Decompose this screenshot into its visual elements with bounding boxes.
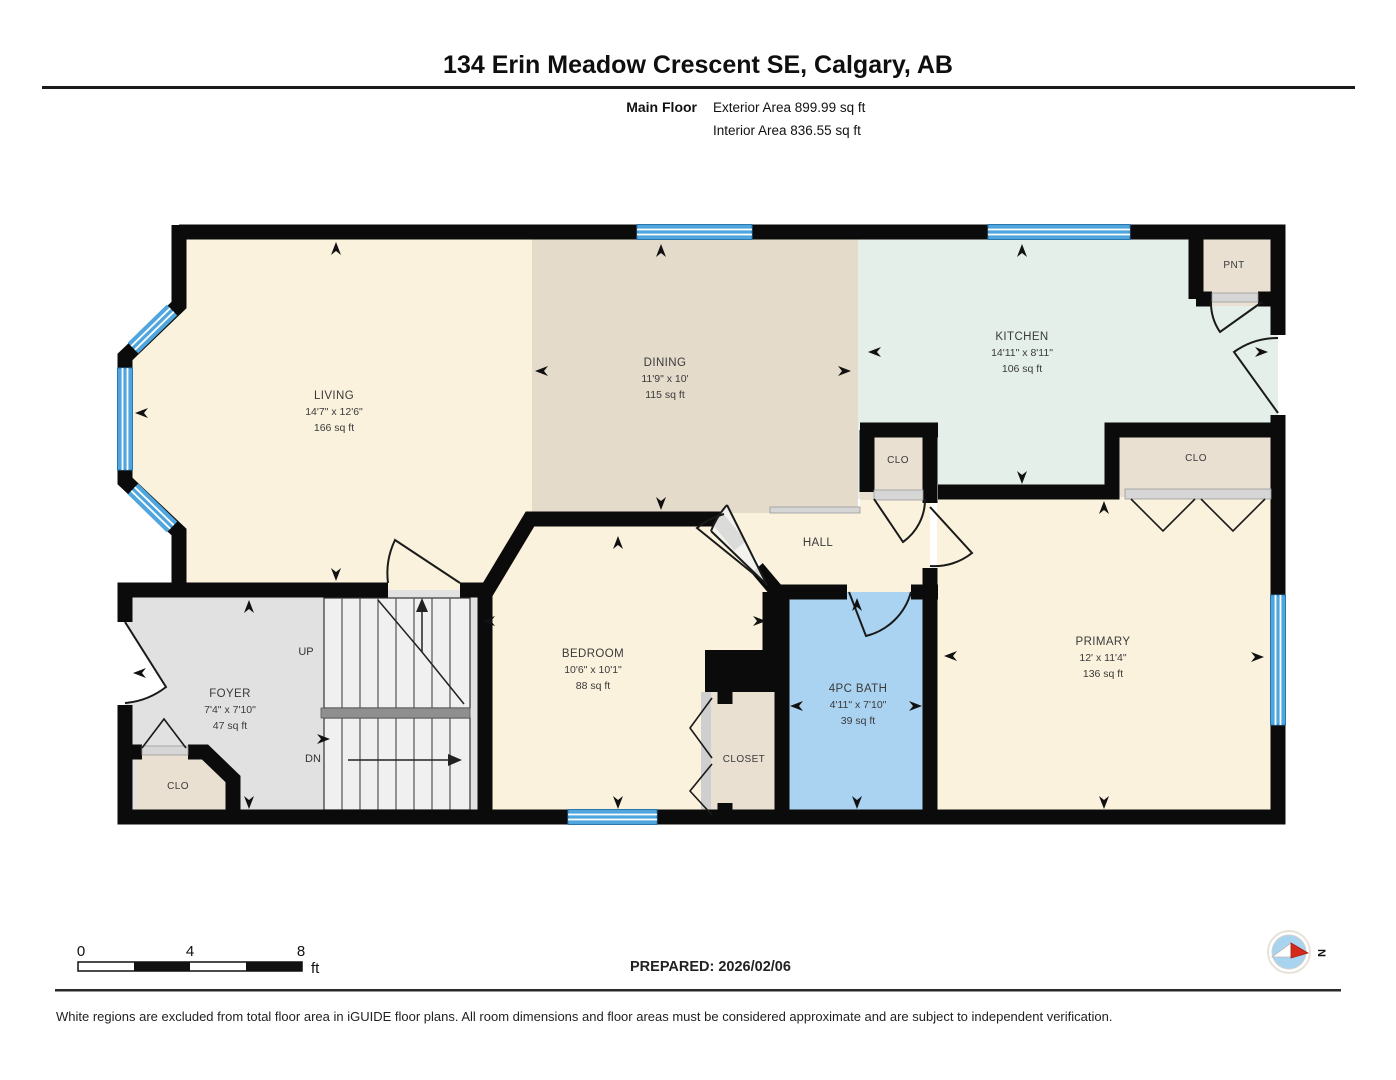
bedroom-dims: 10'6" x 10'1" xyxy=(564,664,622,676)
bath-name: 4PC BATH xyxy=(829,683,888,695)
closet-hall-name: CLO xyxy=(887,455,909,466)
stairs-up-flight xyxy=(324,598,470,708)
floorplan-page: 134 Erin Meadow Crescent SE, Calgary, AB… xyxy=(0,0,1396,1080)
stair-landing xyxy=(321,708,470,718)
closet-primary-threshold xyxy=(1125,489,1271,499)
floorplan-canvas: 134 Erin Meadow Crescent SE, Calgary, AB… xyxy=(0,0,1396,1080)
scale-bar-segment-1 xyxy=(134,962,190,971)
window-dining-top xyxy=(637,225,752,240)
dining-name: DINING xyxy=(644,357,687,369)
kitchen-name: KITCHEN xyxy=(995,331,1048,343)
scale-tick-8: 8 xyxy=(297,943,305,960)
primary-name: PRIMARY xyxy=(1076,636,1131,648)
compass-north-label: N xyxy=(1315,949,1327,957)
pantry-threshold xyxy=(1212,293,1258,302)
primary-dims: 12' x 11'4" xyxy=(1079,652,1127,664)
window-kitchen-top xyxy=(988,225,1130,240)
hall-threshold xyxy=(770,507,860,513)
floor-label: Main Floor xyxy=(626,99,697,115)
pantry-name: PNT xyxy=(1223,260,1244,271)
living-name: LIVING xyxy=(314,390,354,402)
exterior-area-label: Exterior Area 899.99 sq ft xyxy=(713,100,866,115)
dining-area: 115 sq ft xyxy=(645,389,685,401)
dining-floor xyxy=(532,232,858,519)
bedroom-name: BEDROOM xyxy=(562,648,624,660)
hall-name: HALL xyxy=(803,537,834,549)
wall-closet-bedroom-block xyxy=(705,650,782,692)
bedroom-area: 88 sq ft xyxy=(576,680,611,692)
scale-tick-0: 0 xyxy=(77,943,85,960)
stairs-up-label: UP xyxy=(298,646,313,658)
stairs-down-label: DN xyxy=(305,753,321,765)
scale-bar: 0 4 8 ft xyxy=(77,943,320,977)
living-area: 166 sq ft xyxy=(314,422,354,434)
closet-foyer-name: CLO xyxy=(167,781,189,792)
foyer-dims: 7'4" x 7'10" xyxy=(204,704,256,716)
compass-icon: N xyxy=(1268,931,1327,973)
foyer-name: FOYER xyxy=(209,688,251,700)
foyer-area: 47 sq ft xyxy=(213,720,248,732)
header-divider xyxy=(42,86,1355,89)
page-title: 134 Erin Meadow Crescent SE, Calgary, AB xyxy=(443,51,953,79)
window-bay-left xyxy=(118,368,133,470)
bath-dims: 4'11" x 7'10" xyxy=(830,699,887,711)
window-primary-right xyxy=(1271,595,1286,725)
dining-dims: 11'9" x 10' xyxy=(641,373,688,385)
closet-foyer-threshold xyxy=(142,746,188,755)
footer-divider xyxy=(55,989,1341,992)
footer: 0 4 8 ft PREPARED: 2026/02/06 N White re… xyxy=(55,931,1341,1024)
prepared-date: PREPARED: 2026/02/06 xyxy=(630,959,791,975)
scale-unit: ft xyxy=(311,960,320,977)
closet-primary-name: CLO xyxy=(1185,453,1207,464)
staircase xyxy=(321,598,470,810)
scale-tick-4: 4 xyxy=(186,943,194,960)
scale-bar-segment-2 xyxy=(246,962,302,971)
kitchen-area: 106 sq ft xyxy=(1002,363,1042,375)
disclaimer-text: White regions are excluded from total fl… xyxy=(56,1009,1112,1024)
primary-area: 136 sq ft xyxy=(1083,668,1123,680)
closet-hall-threshold xyxy=(874,490,923,500)
kitchen-dims: 14'11" x 8'11" xyxy=(991,347,1053,359)
interior-area-label: Interior Area 836.55 sq ft xyxy=(713,123,861,138)
living-dims: 14'7" x 12'6" xyxy=(305,406,363,418)
bath-area: 39 sq ft xyxy=(841,715,876,727)
window-bedroom-bottom xyxy=(568,810,657,825)
header: 134 Erin Meadow Crescent SE, Calgary, AB… xyxy=(42,51,1355,138)
closet-bedroom-name: CLOSET xyxy=(723,754,765,765)
